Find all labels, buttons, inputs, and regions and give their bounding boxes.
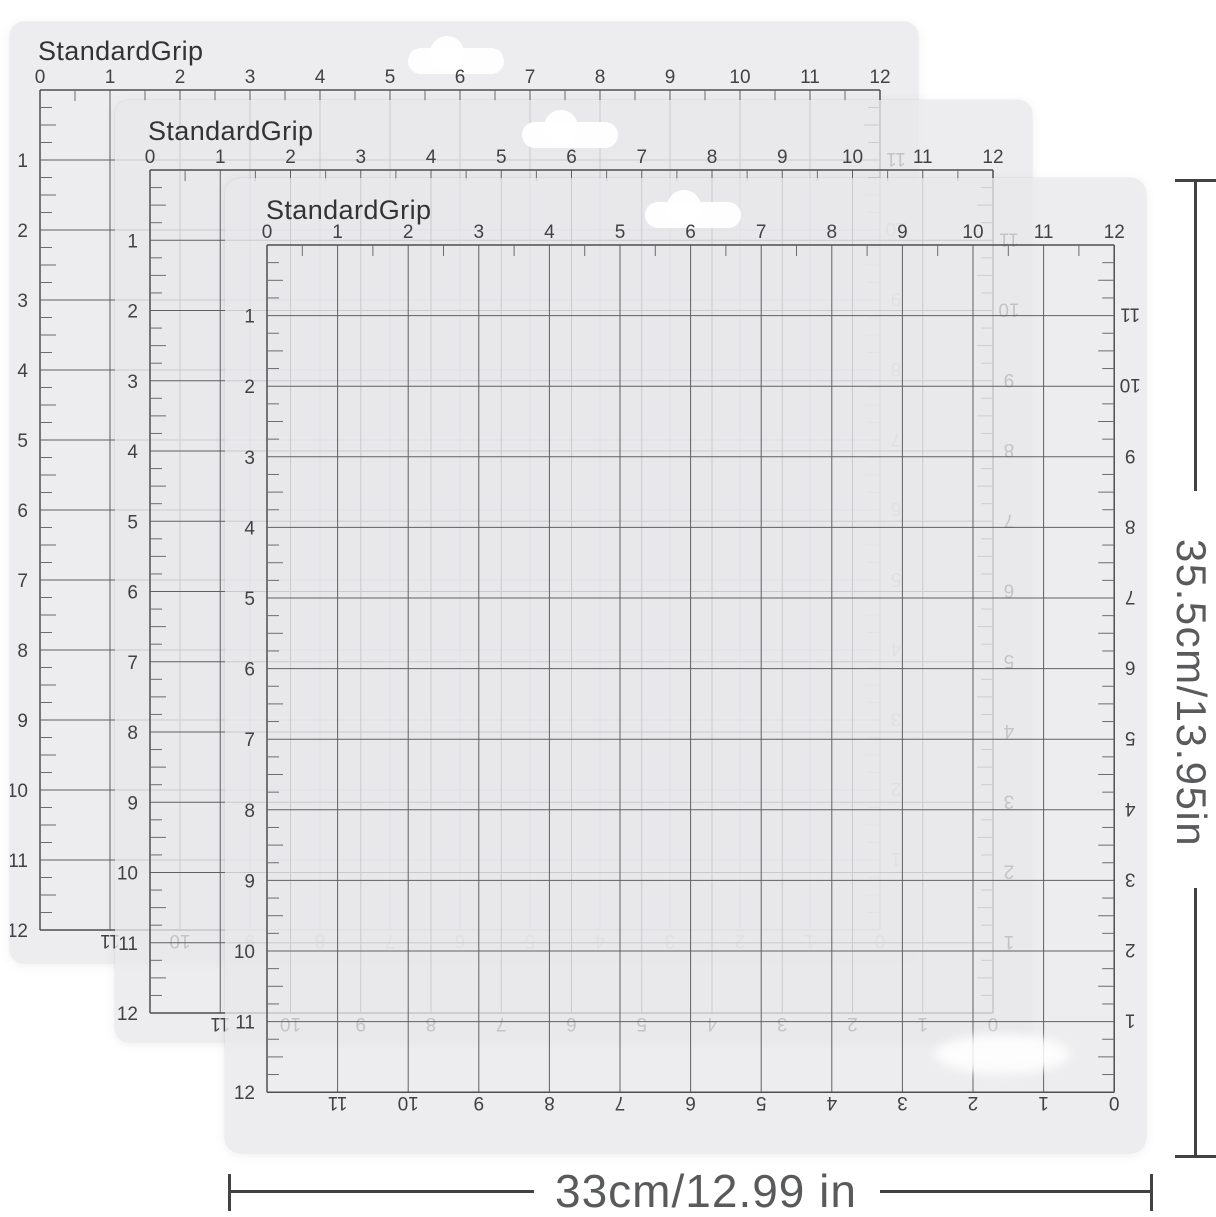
ruler-number: 9 xyxy=(244,871,255,892)
ruler-number: 11 xyxy=(1034,222,1054,243)
ruler-number: 1 xyxy=(105,67,116,88)
ruler-number: 2 xyxy=(403,222,414,243)
ruler-number: 3 xyxy=(897,1092,908,1113)
ruler-number: 2 xyxy=(1125,939,1136,960)
ruler-number: 6 xyxy=(685,222,696,243)
ruler-number: 1 xyxy=(127,231,138,252)
ruler-number: 8 xyxy=(244,801,255,822)
ruler-number: 12 xyxy=(117,1004,138,1025)
ruler-number: 1 xyxy=(1125,1010,1136,1031)
ruler-number: 1 xyxy=(17,151,28,172)
ruler-number: 8 xyxy=(707,147,718,168)
ruler-number: 6 xyxy=(455,67,466,88)
width-dimension-label: 33cm/12.99 in xyxy=(555,1164,857,1217)
ruler-number: 2 xyxy=(127,302,138,323)
ruler-number: 5 xyxy=(127,512,138,533)
ruler-number: 4 xyxy=(826,1092,837,1113)
ruler-number: 9 xyxy=(897,222,908,243)
ruler-number: 8 xyxy=(595,67,606,88)
width-dimension-line-left xyxy=(230,1190,534,1193)
ruler-number: 12 xyxy=(234,1083,255,1104)
ruler-number: 6 xyxy=(685,1092,696,1113)
ruler-number: 3 xyxy=(244,448,255,469)
ruler-number: 2 xyxy=(17,221,28,242)
ruler-number: 11 xyxy=(10,851,28,872)
ruler-number: 7 xyxy=(127,653,138,674)
ruler-number: 4 xyxy=(127,442,138,463)
ruler-number: 7 xyxy=(615,1092,626,1113)
ruler-number: 4 xyxy=(426,147,437,168)
ruler-number: 5 xyxy=(385,67,396,88)
ruler-number: 0 xyxy=(145,147,156,168)
ruler-number: 11 xyxy=(913,147,933,168)
ruler-number: 5 xyxy=(496,147,507,168)
ruler-number: 3 xyxy=(245,67,256,88)
ruler-number: 4 xyxy=(1124,798,1135,819)
ruler-number: 6 xyxy=(17,501,28,522)
ruler-number: 7 xyxy=(17,571,28,592)
ruler-number: 9 xyxy=(474,1092,485,1113)
ruler-number: 1 xyxy=(244,307,255,328)
ruler-number: 4 xyxy=(544,222,555,243)
height-dimension-bottom-cap xyxy=(1175,1155,1216,1158)
ruler-number: 3 xyxy=(127,372,138,393)
ruler-number: 9 xyxy=(127,793,138,814)
ruler-number: 5 xyxy=(756,1092,767,1113)
cutting-mats-product-image: StandardGrip0123456789101112123456789101… xyxy=(0,0,1216,1217)
ruler-number: 7 xyxy=(244,730,255,751)
ruler-number: 10 xyxy=(1120,374,1141,395)
ruler-number: 8 xyxy=(1125,515,1136,536)
ruler-number: 4 xyxy=(315,67,326,88)
ruler-number: 0 xyxy=(262,222,273,243)
mat-sheet-3: StandardGrip0123456789101112123456789101… xyxy=(225,178,1146,1153)
width-dimension-right-cap xyxy=(1150,1174,1153,1211)
ruler-number: 12 xyxy=(869,67,890,88)
ruler-number: 11 xyxy=(235,1013,255,1034)
ruler-number: 9 xyxy=(17,711,28,732)
ruler-number: 10 xyxy=(398,1092,419,1113)
width-dimension-line-right xyxy=(880,1190,1152,1193)
ruler-number: 11 xyxy=(328,1092,348,1113)
ruler-number: 6 xyxy=(244,660,255,681)
ruler-number: 6 xyxy=(127,583,138,604)
ruler-number: 4 xyxy=(244,518,255,539)
ruler-number: 1 xyxy=(332,222,343,243)
ruler-number: 7 xyxy=(1125,586,1136,607)
height-dimension-line-upper xyxy=(1194,181,1197,491)
reflection-smudge xyxy=(935,1034,1070,1074)
ruler-number: 5 xyxy=(615,222,626,243)
ruler-number: 8 xyxy=(127,723,138,744)
ruler-number: 5 xyxy=(17,431,28,452)
ruler-number: 10 xyxy=(117,864,138,885)
height-dimension-line-lower xyxy=(1194,888,1197,1157)
ruler-number: 4 xyxy=(17,361,28,382)
ruler-number: 12 xyxy=(10,921,28,942)
ruler-number: 1 xyxy=(1038,1092,1049,1113)
ruler-number: 7 xyxy=(525,67,536,88)
ruler-number: 10 xyxy=(234,942,255,963)
ruler-number: 3 xyxy=(355,147,366,168)
ruler-number: 11 xyxy=(118,934,138,955)
ruler-number: 5 xyxy=(1125,727,1136,748)
ruler-number: 10 xyxy=(729,67,750,88)
ruler-number: 8 xyxy=(544,1092,555,1113)
ruler-number: 2 xyxy=(285,147,296,168)
ruler-grid: 0123456789101112123456789101112111098765… xyxy=(225,178,1146,1153)
ruler-number: 2 xyxy=(244,377,255,398)
ruler-number: 6 xyxy=(1125,657,1136,678)
ruler-number: 11 xyxy=(800,67,820,88)
ruler-number: 9 xyxy=(1125,445,1136,466)
ruler-number: 3 xyxy=(1125,868,1136,889)
ruler-number: 3 xyxy=(474,222,485,243)
ruler-number: 9 xyxy=(665,67,676,88)
ruler-number: 12 xyxy=(982,147,1003,168)
ruler-number: 5 xyxy=(244,589,255,610)
ruler-number: 0 xyxy=(35,67,46,88)
ruler-number: 11 xyxy=(1120,304,1140,325)
ruler-number: 8 xyxy=(17,641,28,662)
ruler-number: 0 xyxy=(1109,1092,1120,1113)
ruler-number: 9 xyxy=(777,147,788,168)
ruler-number: 2 xyxy=(175,67,186,88)
ruler-number: 10 xyxy=(962,222,983,243)
ruler-number: 7 xyxy=(756,222,767,243)
ruler-number: 3 xyxy=(17,291,28,312)
ruler-number: 10 xyxy=(842,147,863,168)
ruler-number: 1 xyxy=(215,147,226,168)
ruler-number: 10 xyxy=(10,781,28,802)
ruler-number: 6 xyxy=(566,147,577,168)
ruler-number: 2 xyxy=(968,1092,979,1113)
ruler-number: 8 xyxy=(827,222,838,243)
height-dimension-label: 35.5cm/13.95in xyxy=(1167,539,1215,847)
ruler-number: 12 xyxy=(1104,222,1125,243)
ruler-number: 7 xyxy=(636,147,647,168)
